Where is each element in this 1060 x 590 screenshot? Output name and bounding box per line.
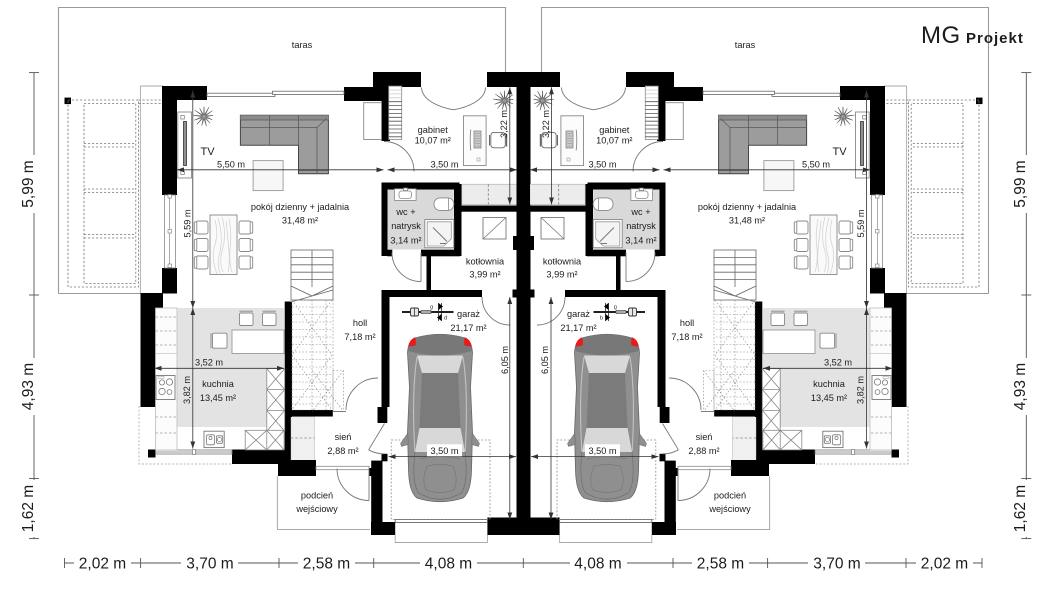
svg-text:21,17 m²: 21,17 m² (450, 323, 486, 333)
svg-text:13,45 m²: 13,45 m² (200, 393, 236, 403)
svg-text:holl: holl (680, 318, 694, 328)
svg-text:13,45 m²: 13,45 m² (811, 393, 847, 403)
svg-text:2,02 m: 2,02 m (79, 555, 126, 572)
svg-text:gabinet: gabinet (418, 125, 449, 135)
svg-text:2,02 m: 2,02 m (921, 555, 968, 572)
svg-text:3,50 m: 3,50 m (588, 446, 616, 456)
svg-text:3,50 m: 3,50 m (430, 159, 458, 169)
svg-text:6,05 m: 6,05 m (500, 346, 510, 374)
svg-text:kuchnia: kuchnia (813, 379, 846, 389)
svg-text:2,58 m: 2,58 m (303, 555, 350, 572)
svg-text:6,05 m: 6,05 m (540, 346, 550, 374)
svg-text:10,07 m²: 10,07 m² (415, 136, 451, 146)
svg-text:21,17 m²: 21,17 m² (560, 323, 596, 333)
svg-text:4,93 m: 4,93 m (20, 363, 37, 410)
svg-text:7,18 m²: 7,18 m² (344, 332, 375, 342)
svg-text:1,62 m: 1,62 m (20, 485, 37, 532)
svg-text:wejściowy: wejściowy (295, 504, 338, 514)
svg-text:TV: TV (832, 146, 847, 158)
svg-text:garaż: garaż (567, 309, 590, 319)
svg-text:kuchnia: kuchnia (202, 379, 235, 389)
svg-text:5,50 m: 5,50 m (217, 159, 245, 169)
svg-text:5,59 m: 5,59 m (856, 209, 866, 237)
svg-text:4,08 m: 4,08 m (574, 555, 621, 572)
svg-text:10,07 m²: 10,07 m² (596, 136, 632, 146)
svg-text:3,50 m: 3,50 m (430, 446, 458, 456)
svg-text:5,99 m: 5,99 m (20, 160, 37, 207)
svg-text:holl: holl (353, 318, 367, 328)
svg-text:3,50 m: 3,50 m (588, 159, 616, 169)
svg-text:TV: TV (200, 146, 215, 158)
svg-text:wejściowy: wejściowy (708, 504, 751, 514)
svg-text:taras: taras (735, 40, 756, 50)
svg-text:3,99 m²: 3,99 m² (469, 270, 500, 280)
svg-text:5,99 m: 5,99 m (1012, 160, 1029, 207)
svg-text:wc +: wc + (630, 207, 650, 217)
svg-text:3,14 m²: 3,14 m² (625, 236, 656, 246)
svg-text:taras: taras (292, 40, 313, 50)
svg-text:2,58 m: 2,58 m (697, 555, 744, 572)
svg-text:sień: sień (335, 432, 352, 442)
svg-text:4,93 m: 4,93 m (1012, 363, 1029, 410)
svg-text:2,88 m²: 2,88 m² (688, 446, 719, 456)
svg-text:natrysk: natrysk (391, 221, 421, 231)
svg-text:natrysk: natrysk (626, 221, 656, 231)
svg-text:3,82 m: 3,82 m (182, 376, 192, 404)
svg-text:3,22 m: 3,22 m (541, 110, 551, 138)
svg-text:kotłownia: kotłownia (466, 257, 505, 267)
svg-text:pokój dzienny + jadalnia: pokój dzienny + jadalnia (251, 202, 350, 212)
svg-text:3,70 m: 3,70 m (186, 555, 233, 572)
svg-text:kotłownia: kotłownia (543, 257, 582, 267)
svg-text:wc +: wc + (395, 207, 415, 217)
svg-text:31,48 m²: 31,48 m² (282, 216, 318, 226)
svg-text:3,52 m: 3,52 m (195, 358, 223, 368)
svg-text:MG: MG (921, 22, 961, 49)
svg-text:gabinet: gabinet (599, 125, 630, 135)
svg-text:pokój dzienny + jadalnia: pokój dzienny + jadalnia (698, 202, 797, 212)
svg-text:3,99 m²: 3,99 m² (546, 270, 577, 280)
svg-text:3,70 m: 3,70 m (813, 555, 860, 572)
svg-text:5,50 m: 5,50 m (802, 159, 830, 169)
svg-text:1,62 m: 1,62 m (1012, 485, 1029, 532)
svg-text:podcień: podcień (714, 491, 746, 501)
svg-text:sień: sień (696, 432, 713, 442)
svg-text:3,14 m²: 3,14 m² (390, 236, 421, 246)
svg-text:3,52 m: 3,52 m (824, 358, 852, 368)
svg-text:Projekt: Projekt (966, 30, 1024, 47)
svg-text:5,59 m: 5,59 m (183, 209, 193, 237)
svg-text:2,88 m²: 2,88 m² (327, 446, 358, 456)
svg-text:podcień: podcień (301, 491, 333, 501)
svg-text:31,48 m²: 31,48 m² (729, 216, 765, 226)
svg-text:3,82 m: 3,82 m (856, 376, 866, 404)
svg-text:4,08 m: 4,08 m (425, 555, 472, 572)
svg-text:7,18 m²: 7,18 m² (671, 332, 702, 342)
svg-text:garaż: garaż (457, 309, 480, 319)
svg-text:3,22 m: 3,22 m (499, 110, 509, 138)
